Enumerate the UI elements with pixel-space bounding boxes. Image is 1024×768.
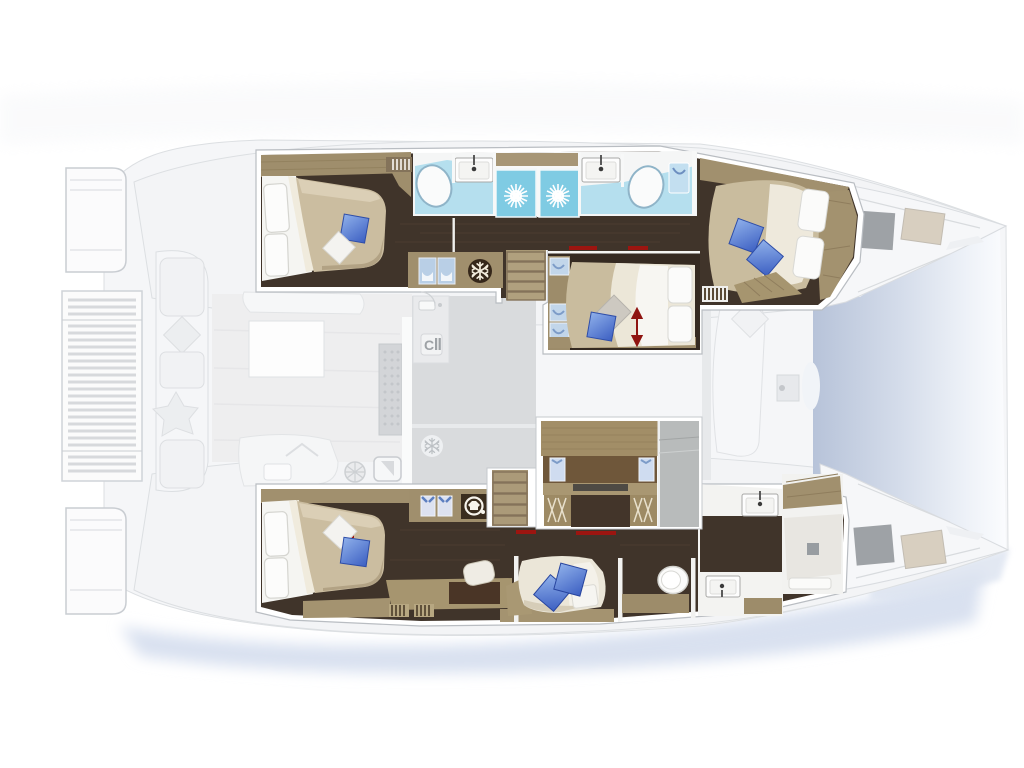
svg-text:C: C bbox=[424, 337, 434, 353]
